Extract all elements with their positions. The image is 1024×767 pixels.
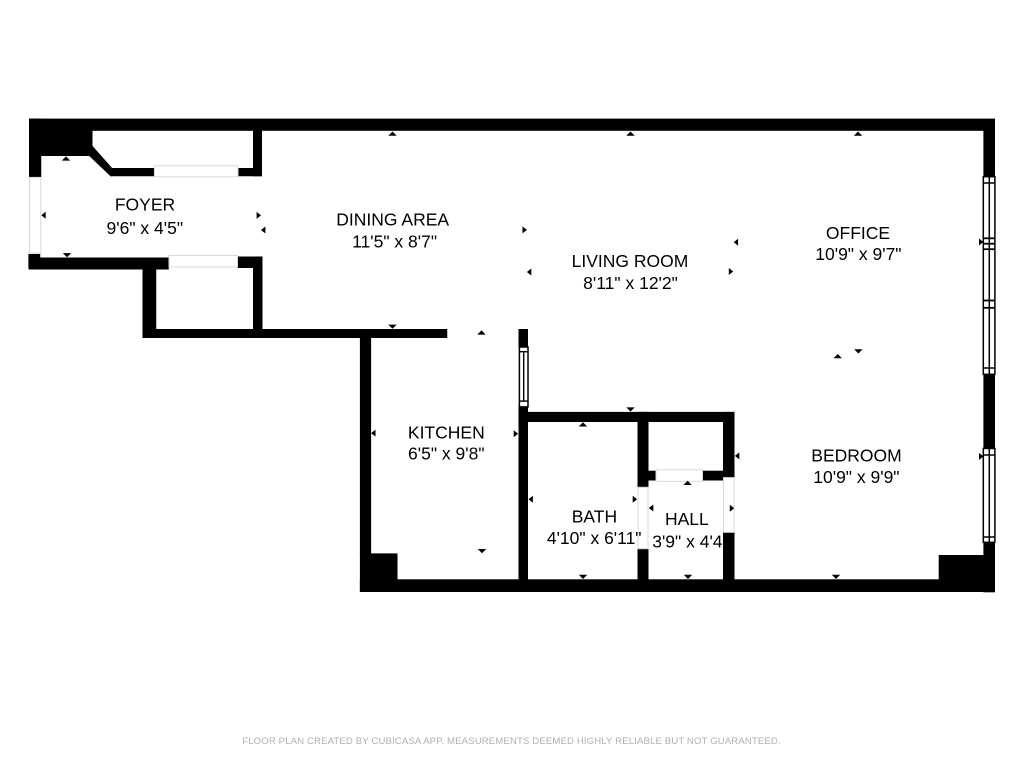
svg-text:10'9" x 9'9": 10'9" x 9'9" [813, 467, 899, 487]
svg-text:BEDROOM: BEDROOM [811, 445, 901, 465]
svg-text:8'11" x 12'2": 8'11" x 12'2" [583, 273, 678, 293]
svg-text:11'5" x 8'7": 11'5" x 8'7" [352, 232, 437, 252]
svg-text:OFFICE: OFFICE [826, 223, 890, 243]
svg-text:6'5" x 9'8": 6'5" x 9'8" [408, 444, 485, 464]
svg-text:FOYER: FOYER [115, 195, 175, 215]
svg-text:HALL: HALL [665, 509, 709, 529]
svg-text:KITCHEN: KITCHEN [408, 423, 485, 443]
svg-text:3'9" x 4'4": 3'9" x 4'4" [652, 531, 729, 551]
svg-text:10'9" x 9'7": 10'9" x 9'7" [815, 244, 901, 264]
svg-text:9'6" x 4'5": 9'6" x 4'5" [107, 218, 184, 238]
svg-text:DINING AREA: DINING AREA [336, 209, 449, 229]
svg-text:BATH: BATH [572, 507, 617, 527]
svg-text:4'10" x 6'11": 4'10" x 6'11" [547, 528, 642, 548]
svg-text:LIVING ROOM: LIVING ROOM [572, 251, 689, 271]
svg-text:FLOOR PLAN CREATED BY CUBICASA: FLOOR PLAN CREATED BY CUBICASA APP. MEAS… [242, 736, 781, 747]
